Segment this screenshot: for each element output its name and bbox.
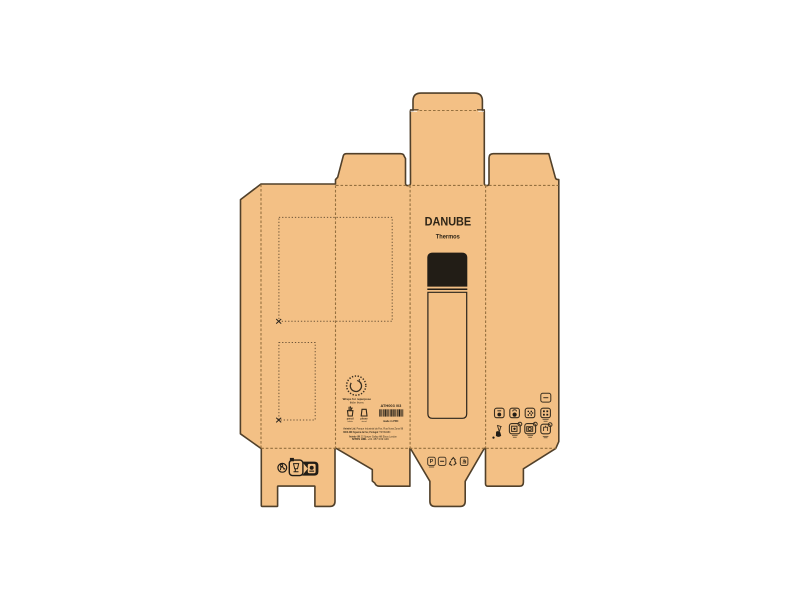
svg-text:Wraps for repurpose: Wraps for repurpose	[343, 397, 372, 401]
svg-text:Thermos: Thermos	[436, 233, 460, 240]
svg-text:MTRS HML +01 457 039 449: MTRS HML +01 457 039 449	[352, 438, 389, 441]
svg-text:DANUBE: DANUBE	[425, 215, 472, 229]
svg-text:made in PRC: made in PRC	[383, 419, 399, 423]
svg-text:stand: stand	[362, 420, 367, 423]
svg-text:P: P	[430, 459, 434, 465]
svg-text:little lives: little lives	[350, 402, 365, 405]
svg-text:holder: holder	[347, 421, 353, 423]
svg-text:ATH003 /03: ATH003 /03	[381, 404, 402, 408]
svg-text:8000-360 Figueira da Foz, Port: 8000-360 Figueira da Foz, Portugal 77070…	[343, 431, 391, 434]
